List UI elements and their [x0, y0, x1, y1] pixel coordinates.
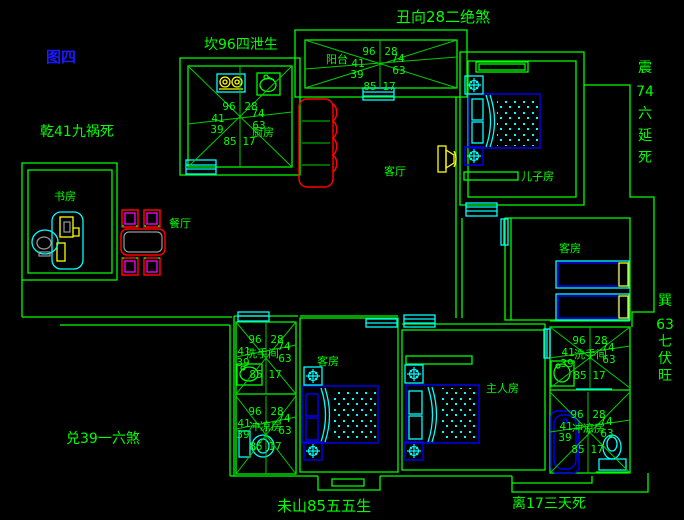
room-label-son: 儿子房 [521, 170, 554, 183]
compass-number-bot_l: 85 [249, 368, 262, 381]
svg-text:伏: 伏 [658, 351, 672, 367]
annotation-chou: 丑向28二绝煞 [396, 8, 490, 26]
compass-number-bot_l: 85 [363, 80, 376, 93]
sofa[interactable] [299, 99, 337, 187]
bed-master[interactable] [406, 385, 479, 443]
annotation-kan: 坎96四泄生 [204, 37, 278, 53]
svg-text:旺: 旺 [658, 368, 672, 384]
room-label-bath-right-lower: 冲凉房 [572, 421, 605, 435]
figure-label: 图四 [46, 48, 76, 66]
room-label-study: 书房 [54, 190, 76, 203]
annotation-weishan: 未山85五五生 [277, 497, 371, 515]
room-label-balcony: 阳台 [326, 52, 348, 66]
nightstand-lamp[interactable] [304, 442, 322, 460]
room-label-master: 主人房 [486, 382, 519, 395]
compass-number-low_l: 39 [558, 431, 571, 444]
bed-guest-right-2[interactable] [556, 294, 629, 320]
desk[interactable] [52, 212, 83, 269]
compass-number-bot_r: 17 [592, 369, 605, 382]
room-label-guest-right: 客房 [559, 241, 581, 255]
svg-text:延: 延 [638, 128, 652, 144]
compass-number-bot_l: 85 [571, 443, 584, 456]
dining-chair [144, 257, 160, 275]
compass-number-low_r: 63 [392, 64, 405, 77]
annotation-qian: 乾41九祸死 [40, 124, 114, 140]
room-label-bath-right-upper: 洗手间 [574, 347, 607, 361]
room-label-bath-left-upper: 洗手间 [246, 346, 279, 360]
compass-number-low_l: 39 [350, 68, 363, 81]
nightstand-lamp[interactable] [405, 442, 423, 460]
compass-number-bot_r: 17 [268, 440, 281, 453]
compass-number-bot_l: 85 [223, 135, 236, 148]
shelf-son[interactable] [464, 172, 518, 180]
room-label-kitchen: 厨房 [252, 126, 274, 139]
dining-chair [122, 257, 138, 275]
kitchen-sink[interactable] [257, 73, 280, 95]
dining-set[interactable] [121, 210, 165, 275]
compass-number-low_r: 63 [278, 352, 291, 365]
nightstand-lamp[interactable] [304, 367, 322, 385]
room-label-bath-left-lower: 冲凉房 [249, 419, 282, 433]
bed-son[interactable] [469, 94, 540, 148]
room-label-living: 客厅 [384, 164, 406, 178]
compass-number-bot_r: 17 [590, 443, 603, 456]
bed-guest-right-1[interactable] [556, 261, 629, 288]
compass-rose-balcony[interactable]: 9628417439638517 [305, 40, 457, 93]
room-label-dining: 餐厅 [169, 216, 191, 230]
svg-text:74: 74 [636, 84, 654, 100]
window-bath-left [238, 312, 269, 321]
annotation-li: 离17三天死 [512, 495, 586, 512]
window-master [404, 315, 435, 327]
compass-number-low_l: 39 [236, 428, 249, 441]
office-chair[interactable] [32, 230, 58, 256]
window-guest-right [501, 219, 508, 245]
annotation-dui: 兑39一六煞 [66, 431, 140, 447]
dining-chair [144, 210, 160, 227]
svg-text:七: 七 [658, 334, 672, 350]
svg-text:63: 63 [656, 317, 674, 333]
room-label-guest-bottom: 客房 [317, 354, 339, 368]
wardrobe[interactable] [476, 62, 528, 72]
annotation-xun-vertical: 巽 63 七 伏 旺 [656, 293, 674, 384]
nightstand-lamp[interactable] [405, 365, 423, 383]
dining-chair [122, 210, 138, 227]
compass-rose-bath-left-lower[interactable]: 9628417439638517 [236, 396, 296, 474]
compass-number-low_l: 39 [210, 123, 223, 136]
tv[interactable] [438, 146, 456, 172]
bed-guest-bottom[interactable] [302, 386, 378, 443]
stove[interactable] [217, 74, 245, 92]
svg-text:死: 死 [638, 150, 652, 166]
compass-number-bot_r: 17 [382, 80, 395, 93]
svg-text:巽: 巽 [658, 293, 672, 309]
svg-text:六: 六 [638, 106, 652, 122]
compass-number-bot_l: 85 [249, 440, 262, 453]
window-guest-bottom [366, 319, 397, 327]
floorplan-canvas[interactable]: 9628417439638517962841743963851796284174… [0, 0, 684, 520]
compass-number-bot_r: 17 [268, 368, 281, 381]
shelf-master[interactable] [406, 356, 472, 364]
compass-number-low_l: 39 [560, 357, 573, 370]
svg-text:震: 震 [638, 60, 652, 76]
compass-number-bot_l: 85 [573, 369, 586, 382]
compass-rose-kitchen[interactable]: 9628417439638517 [188, 66, 292, 167]
annotation-zhen-vertical: 震 74 六 延 死 [636, 60, 654, 166]
